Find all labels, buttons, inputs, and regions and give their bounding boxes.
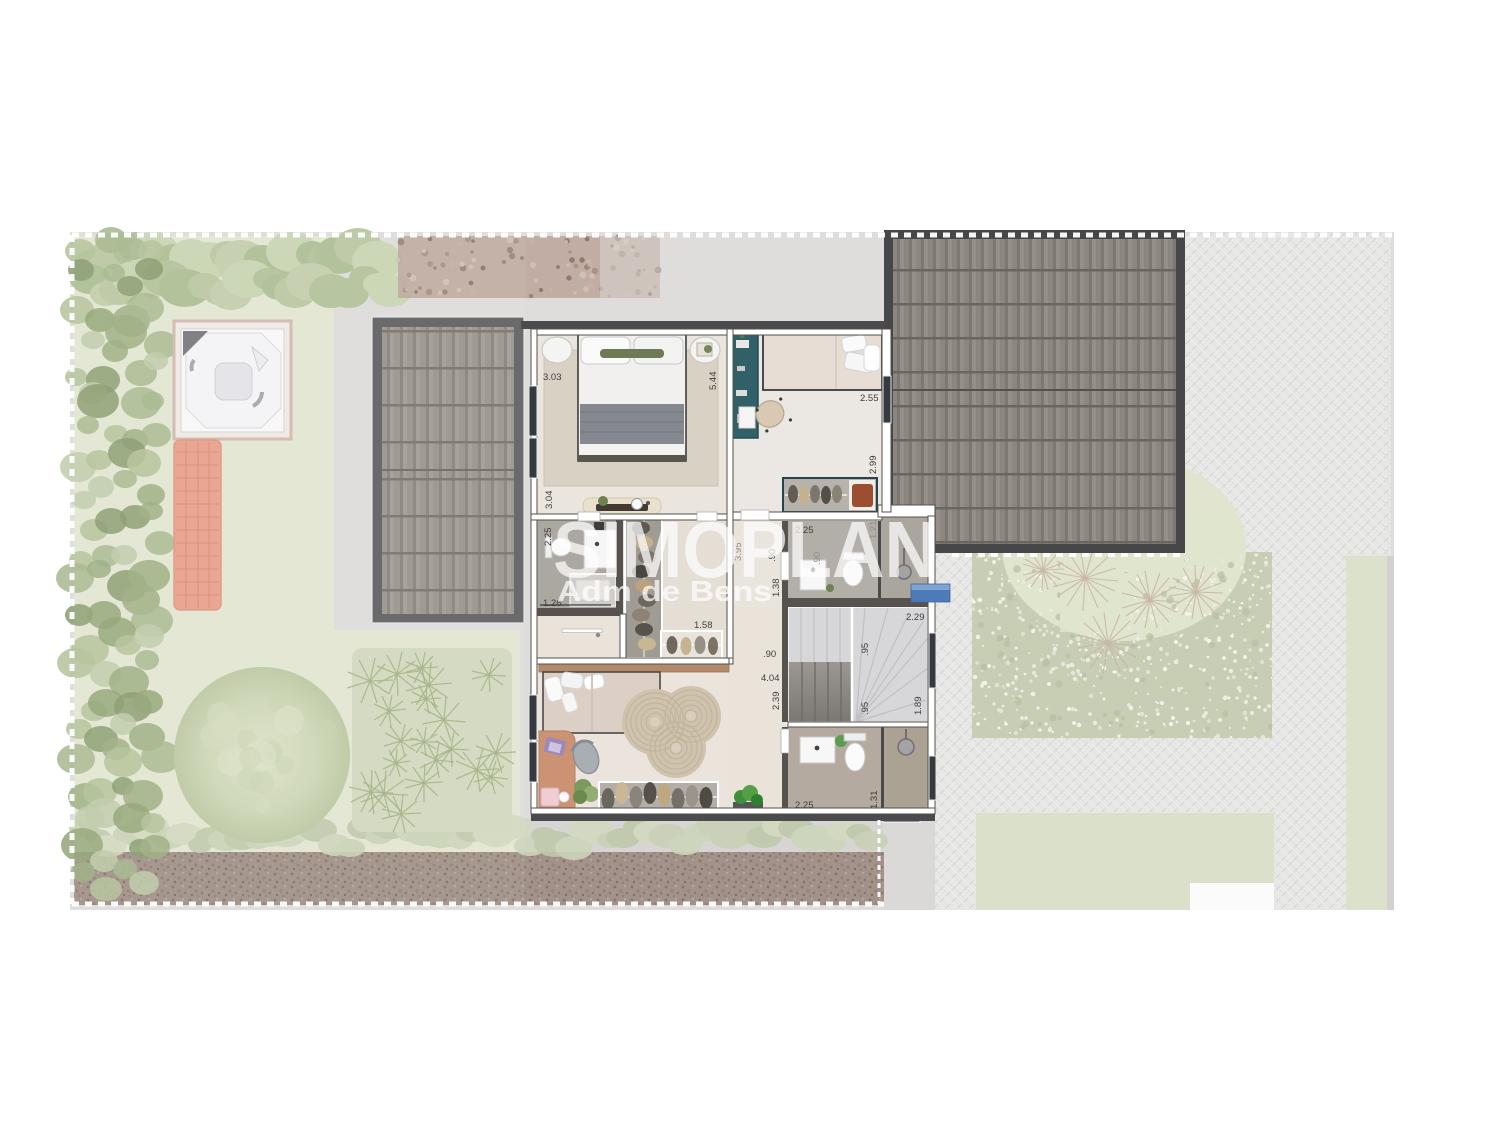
svg-text:1.31: 1.31 [869,791,880,810]
svg-text:2.39: 2.39 [771,692,782,711]
svg-text:Adm de Bens: Adm de Bens [557,576,772,608]
svg-text:.95: .95 [860,643,871,656]
svg-text:4.04: 4.04 [761,673,780,684]
svg-text:2.55: 2.55 [860,393,879,404]
svg-text:2.99: 2.99 [868,456,879,475]
svg-text:2.25: 2.25 [795,800,814,811]
svg-text:1.89: 1.89 [913,697,924,716]
svg-text:1.58: 1.58 [694,620,713,631]
svg-text:.95: .95 [860,702,871,715]
svg-text:.90: .90 [763,649,776,660]
svg-text:2.29: 2.29 [906,612,925,623]
svg-text:3.03: 3.03 [543,372,562,383]
svg-text:5.44: 5.44 [708,372,719,391]
